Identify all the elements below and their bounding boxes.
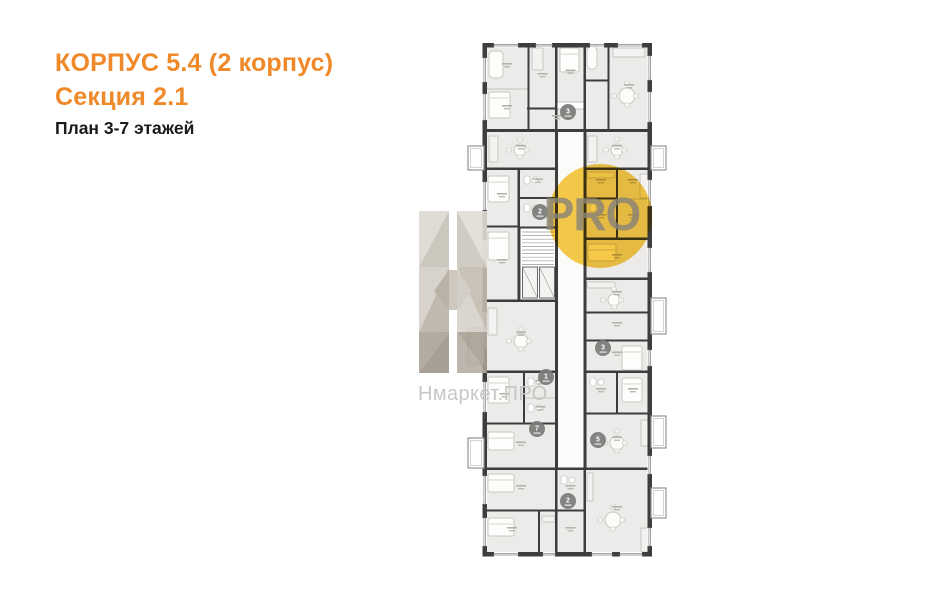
svg-text:7: 7 — [535, 426, 539, 433]
svg-text:2: 2 — [538, 209, 542, 216]
floorplan-svg: 3213752 PRO Нмаркет.ПРО — [0, 0, 941, 600]
svg-text:1: 1 — [544, 374, 548, 381]
svg-text:3: 3 — [601, 345, 605, 352]
nmarket-logo-icon — [419, 211, 487, 373]
svg-text:2: 2 — [566, 498, 570, 505]
svg-text:5: 5 — [596, 437, 600, 444]
svg-text:3: 3 — [566, 109, 570, 116]
page-canvas: КОРПУС 5.4 (2 корпус) Секция 2.1 План 3-… — [0, 0, 941, 600]
brand-watermark-text: Нмаркет.ПРО — [418, 383, 548, 405]
pro-badge-text: PRO — [544, 188, 641, 240]
